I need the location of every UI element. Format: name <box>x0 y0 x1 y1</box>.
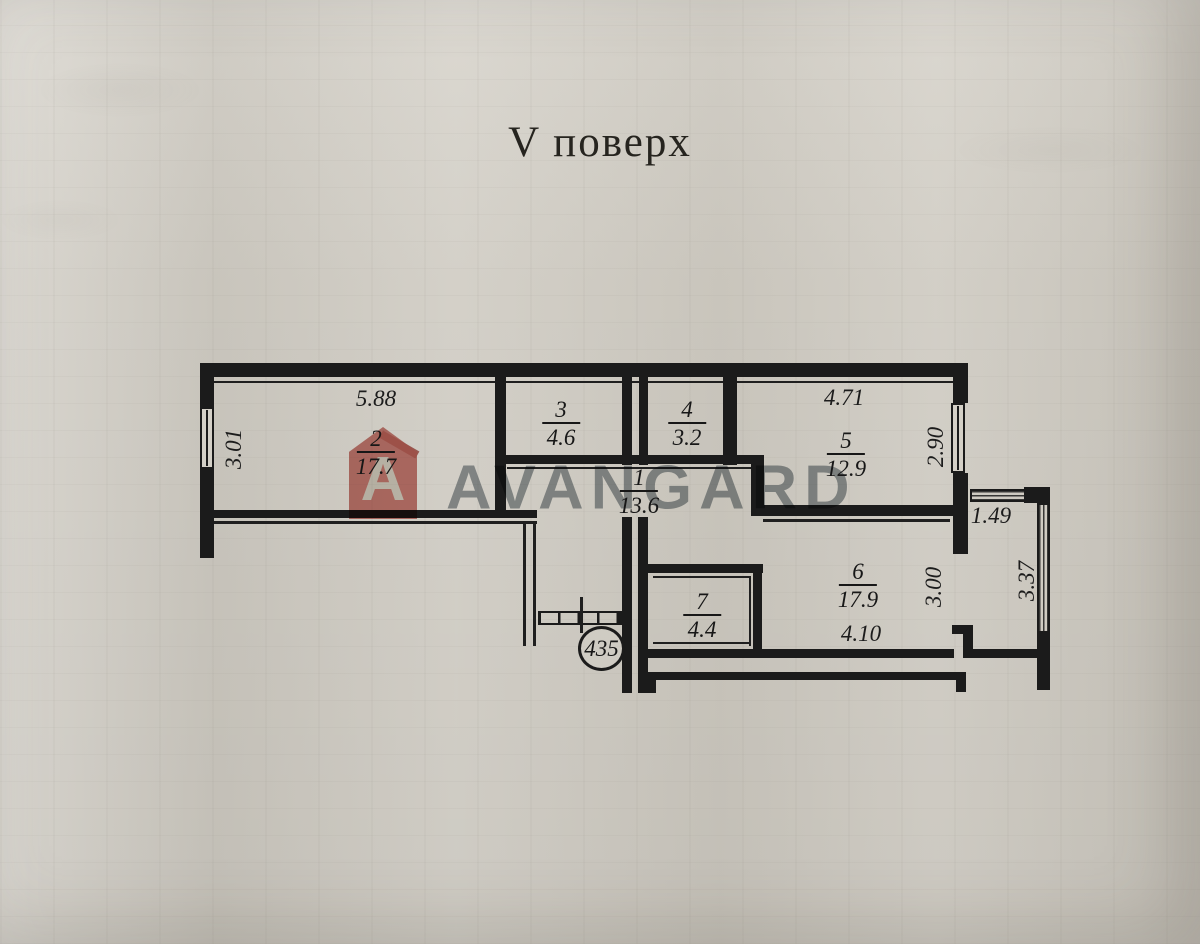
wall-room7-top-inner-line <box>653 576 751 578</box>
wall-room2-bottom-inner-line <box>214 521 537 524</box>
dim-room5-width: 4.71 <box>824 385 864 411</box>
wall-room5-bottom-inner-line <box>763 519 950 522</box>
window-right-2-90 <box>951 403 965 473</box>
dim-room2-depth: 3.01 <box>221 429 247 469</box>
room-number: 7 <box>683 590 721 616</box>
dim-room6-depth: 3.00 <box>921 567 947 607</box>
room-area: 3.2 <box>668 424 706 449</box>
room-number: 4 <box>668 398 706 424</box>
room-number: 6 <box>839 560 877 586</box>
room-label-4: 4 3.2 <box>668 398 706 450</box>
wall-vestibule-left-inner <box>533 521 536 646</box>
entrance-door-tick <box>580 597 583 633</box>
balcony-glazing-top <box>970 489 1026 502</box>
wall-top <box>200 363 968 377</box>
room-label-5: 5 12.9 <box>826 429 866 481</box>
wall-vestibule-left-outer <box>523 521 526 646</box>
wall-room7-right <box>753 564 762 658</box>
dim-balcony-depth: 3.37 <box>1014 561 1040 601</box>
building-lower-line-right-tick <box>956 672 966 692</box>
wall-vestibule-right-a <box>622 517 632 693</box>
room-label-living-6: 6 17.9 <box>838 560 878 612</box>
scanned-paper-background: V поверх A AVANGARD <box>0 0 1200 944</box>
apartment-number-badge: 435 <box>578 626 625 671</box>
floor-title: V поверх <box>508 118 692 167</box>
wall-vestibule-right-b <box>638 517 648 693</box>
room-number: 1 <box>620 466 658 492</box>
room-label-corridor-1: 1 13.6 <box>619 466 659 518</box>
room-label-7: 7 4.4 <box>683 590 721 642</box>
room-number: 5 <box>827 429 865 455</box>
room-area: 17.9 <box>838 586 878 611</box>
room-label-living-2: 2 17.7 <box>356 427 396 479</box>
wall-room7-top <box>645 564 763 573</box>
dim-balcony-width: 1.49 <box>971 503 1011 529</box>
wall-balcony-door-jamb-h <box>952 625 973 634</box>
wall-room7-right-inner-line <box>749 576 751 646</box>
wall-balcony-corner-topright <box>1024 487 1050 503</box>
dim-room6-width: 4.10 <box>841 621 881 647</box>
wall-room2-bottom <box>200 510 537 518</box>
room-area: 4.6 <box>542 424 580 449</box>
room-area: 17.7 <box>356 453 396 478</box>
wall-balcony-corner-bottomright <box>1037 633 1050 690</box>
room-number: 3 <box>542 398 580 424</box>
wall-room2-right <box>495 377 506 518</box>
building-lower-line <box>648 672 966 680</box>
wall-room3-room4-a <box>622 377 632 465</box>
wall-room5-bottom <box>751 505 957 516</box>
room-area: 4.4 <box>683 616 721 641</box>
room-label-3: 3 4.6 <box>542 398 580 450</box>
room-number: 2 <box>357 427 395 453</box>
room-area: 13.6 <box>619 492 659 517</box>
wall-top-inner-line <box>214 381 953 383</box>
dim-room2-width: 5.88 <box>356 386 396 412</box>
dim-room5-depth: 2.90 <box>923 427 949 467</box>
window-left-3-01 <box>200 407 214 469</box>
wall-room3-room4-b <box>639 377 648 465</box>
building-lower-line-left-tick <box>648 672 656 693</box>
wall-right-upper <box>953 363 968 403</box>
wall-bottom <box>640 649 954 658</box>
room-area: 12.9 <box>826 455 866 480</box>
wall-left-upper <box>200 363 214 407</box>
wall-room7-bottom-inner-line <box>653 642 751 644</box>
wall-room4-room5 <box>723 377 737 465</box>
wall-balcony-bottom <box>966 649 1042 658</box>
